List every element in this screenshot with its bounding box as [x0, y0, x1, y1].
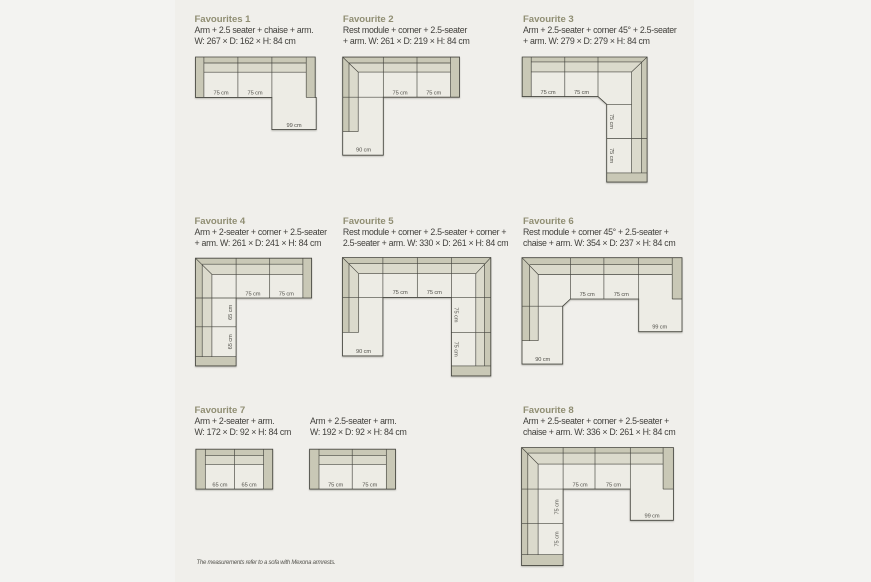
svg-text:65 cm: 65 cm	[212, 483, 227, 489]
svg-text:75 cm: 75 cm	[453, 307, 459, 322]
svg-text:65 cm: 65 cm	[228, 334, 234, 349]
svg-text:75 cm: 75 cm	[541, 90, 556, 96]
svg-text:75 cm: 75 cm	[328, 483, 343, 489]
svg-text:65 cm: 65 cm	[242, 483, 257, 489]
svg-text:75 cm: 75 cm	[555, 499, 561, 514]
svg-text:75 cm: 75 cm	[248, 91, 263, 97]
svg-text:75 cm: 75 cm	[614, 292, 629, 298]
svg-text:75 cm: 75 cm	[362, 483, 377, 489]
svg-text:90 cm: 90 cm	[356, 147, 371, 153]
svg-text:90 cm: 90 cm	[535, 357, 550, 363]
svg-text:75 cm: 75 cm	[573, 482, 588, 488]
svg-text:75 cm: 75 cm	[393, 290, 408, 296]
svg-text:75 cm: 75 cm	[427, 290, 442, 296]
svg-text:75 cm: 75 cm	[574, 90, 589, 96]
svg-text:75 cm: 75 cm	[608, 148, 614, 163]
svg-text:75 cm: 75 cm	[279, 292, 294, 298]
svg-text:99 cm: 99 cm	[287, 123, 302, 129]
svg-text:75 cm: 75 cm	[555, 531, 561, 546]
svg-text:65 cm: 65 cm	[228, 305, 234, 320]
svg-text:90 cm: 90 cm	[356, 349, 371, 355]
svg-text:75 cm: 75 cm	[426, 90, 441, 96]
svg-text:75 cm: 75 cm	[606, 482, 621, 488]
svg-text:75 cm: 75 cm	[453, 342, 459, 357]
svg-text:99 cm: 99 cm	[645, 514, 660, 520]
svg-text:99 cm: 99 cm	[652, 324, 667, 330]
svg-text:75 cm: 75 cm	[608, 114, 614, 129]
svg-text:75 cm: 75 cm	[393, 90, 408, 96]
svg-text:75 cm: 75 cm	[580, 292, 595, 298]
svg-text:75 cm: 75 cm	[245, 292, 260, 298]
svg-text:75 cm: 75 cm	[214, 91, 229, 97]
